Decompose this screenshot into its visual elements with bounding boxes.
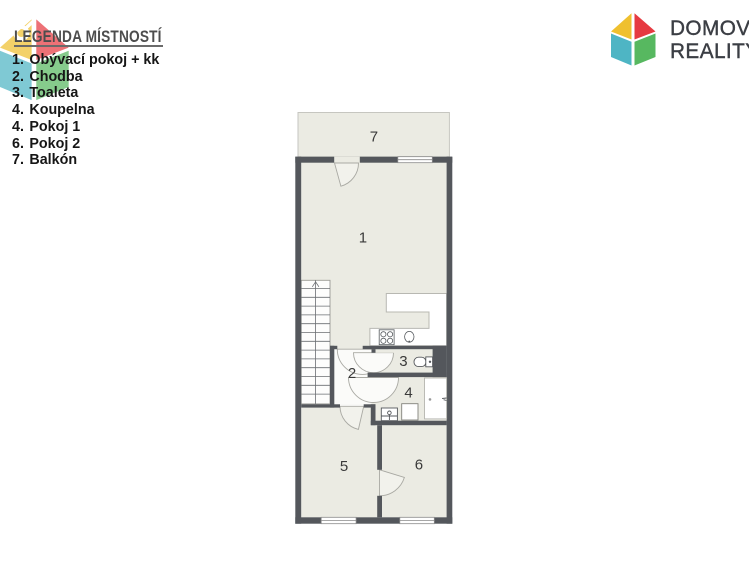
- svg-text:7: 7: [370, 129, 378, 146]
- svg-text:4: 4: [404, 385, 412, 402]
- svg-text:5: 5: [340, 458, 348, 475]
- svg-text:3: 3: [399, 353, 407, 370]
- svg-text:6: 6: [415, 456, 423, 473]
- svg-text:2: 2: [348, 365, 356, 382]
- svg-text:1: 1: [359, 229, 367, 246]
